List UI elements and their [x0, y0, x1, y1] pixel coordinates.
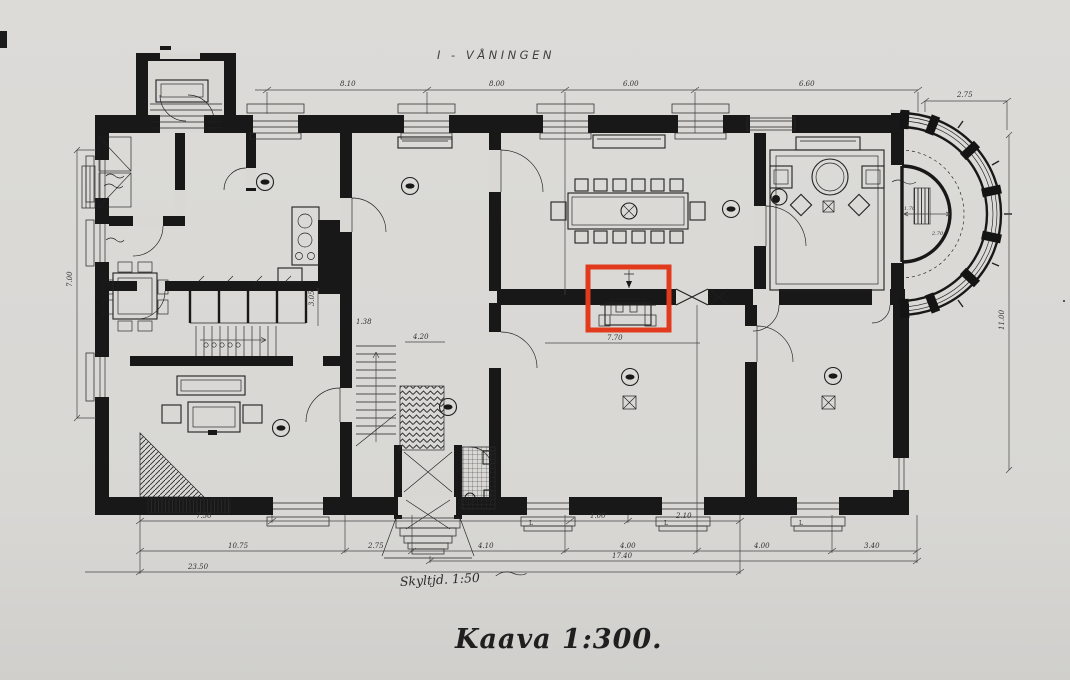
window-symbol	[267, 497, 329, 526]
dim-label: 6.00	[623, 80, 639, 88]
dim-label: 2.75	[956, 91, 973, 99]
dim-label: 4.20	[412, 333, 429, 341]
dim-label: 2.70	[931, 231, 944, 237]
scale-caption: Kaava 1:300.	[454, 624, 663, 655]
dim-label: 8.00	[489, 80, 505, 88]
floor-plan-canvas: 1.70 2.70	[0, 0, 1070, 680]
dim-label: 17.40	[612, 552, 633, 560]
dim-label: 2.10	[675, 512, 692, 520]
window-mark: L	[664, 520, 668, 527]
window-mark: L	[799, 520, 803, 527]
dim-label: 1.38	[356, 318, 372, 326]
window-symbol	[893, 458, 909, 490]
dim-label: 4.10	[477, 542, 494, 550]
dim-label: 23.50	[187, 563, 209, 571]
dim-label: 10.75	[228, 542, 249, 550]
hatched-sill	[148, 499, 230, 513]
bathroom	[462, 447, 495, 509]
dim-label: 6.60	[799, 80, 815, 88]
bay-stair-hatch	[914, 188, 930, 224]
plan-title: I - VÅNINGEN	[437, 47, 555, 62]
dim-label: 4.00	[619, 542, 636, 550]
dim-label: 3.40	[864, 542, 880, 550]
dim-label: 7.50	[196, 512, 212, 520]
scanned-floor-plan-page: 1.70 2.70	[0, 0, 1070, 680]
dim-label: 4.00	[753, 542, 770, 550]
dim-label: 1.00	[590, 512, 606, 520]
dim-label: 7.00	[66, 271, 74, 287]
dim-label: 3.05	[308, 290, 316, 306]
parquet-hatch	[400, 386, 444, 450]
dim-label: 2.75	[367, 542, 384, 550]
dim-label: 11.00	[998, 309, 1006, 330]
dim-label: 1.70	[904, 206, 916, 212]
window-mark: L	[529, 520, 533, 527]
dim-label: 7.70	[607, 334, 623, 342]
window-symbol	[747, 115, 795, 133]
dim-label: 8.10	[340, 80, 356, 88]
